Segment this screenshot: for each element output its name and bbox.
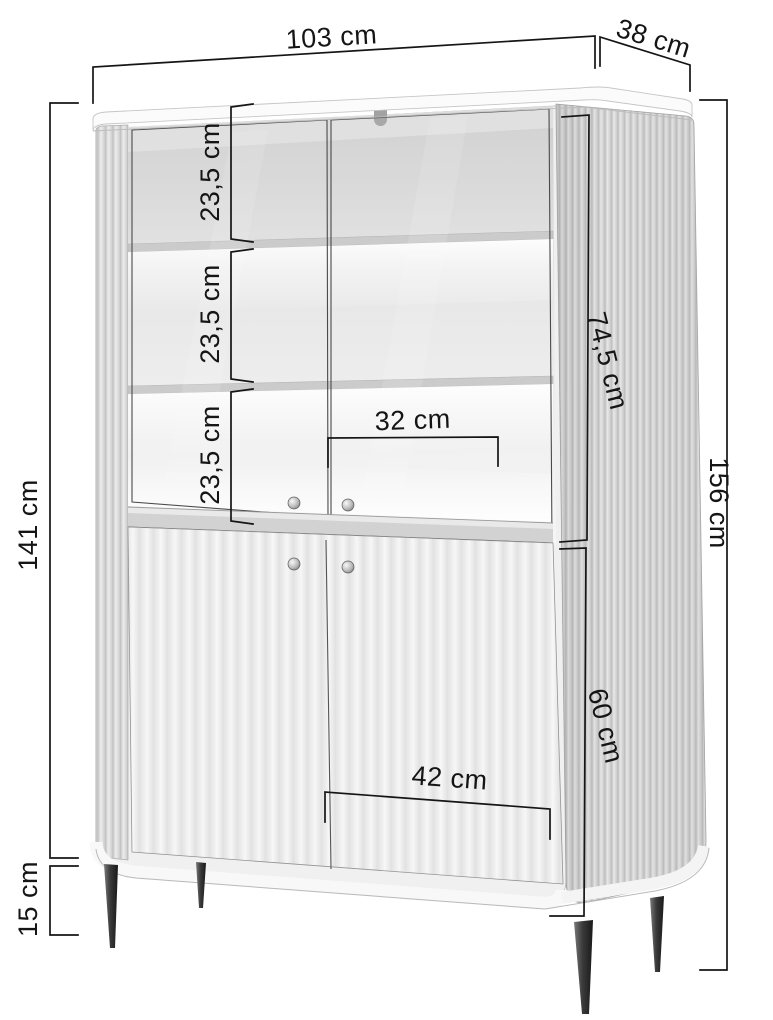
dim-top-depth-label: 38 cm [613, 13, 694, 64]
cabinet-diagram-svg: 103 cm 38 cm 141 cm 15 cm 156 cm 74,5 cm… [0, 0, 773, 1020]
dim-leg-height-line [50, 866, 78, 935]
dim-body-height-line [50, 103, 78, 858]
leg-back-right [650, 896, 664, 972]
cabinet-side-panel-shade [556, 104, 706, 903]
dim-door-width-label: 42 cm [411, 760, 489, 795]
leg-back-left [196, 862, 206, 908]
leg-front-right [574, 920, 593, 1014]
cabinet [93, 87, 709, 1014]
lower-doors [128, 527, 563, 884]
dim-inner-width-label: 32 cm [374, 404, 451, 437]
glass-door-left-knob [288, 497, 300, 509]
lower-doors-sheen [128, 527, 563, 884]
dim-top-width-label: 103 cm [285, 19, 378, 55]
dimension-diagram: 103 cm 38 cm 141 cm 15 cm 156 cm 74,5 cm… [0, 0, 773, 1020]
leg-front-left [104, 864, 118, 948]
dim-total-height-label: 156 cm [704, 457, 734, 549]
dim-body-height-label: 141 cm [13, 479, 43, 571]
dim-leg-height-label: 15 cm [13, 861, 43, 937]
dim-shelf-bottom-label: 23,5 cm [195, 405, 225, 505]
dim-shelf-middle-label: 23,5 cm [195, 264, 225, 364]
cabinet-left-stile [96, 125, 128, 860]
lower-door-right-knob [342, 561, 354, 573]
glass-door-right-knob [342, 499, 354, 511]
lower-door-left-knob [288, 558, 300, 570]
dim-shelf-top-label: 23,5 cm [195, 122, 225, 222]
